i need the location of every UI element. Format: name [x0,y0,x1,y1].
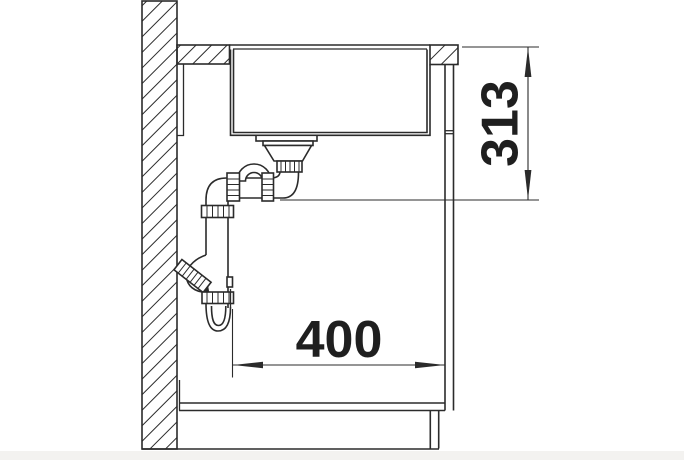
trap-vertical-pipe [206,218,228,256]
plinth-front [430,411,438,449]
dimension-400-label: 400 [296,311,383,369]
dimension-313: 313 [280,47,539,200]
union-nut-left [227,173,240,201]
footer-strip [0,451,684,460]
dimension-313-label: 313 [472,80,530,167]
dim-400-arrow-left [233,362,263,368]
dim-313-arrow-bottom [525,170,532,200]
sink-basin [231,49,431,135]
countertop-right-section [430,45,458,65]
cabinet-bottom-shelf [179,380,445,411]
union-nut-lower [202,292,234,304]
strainer-assembly [256,135,317,172]
wall-section [142,1,177,449]
union-nut-right [262,173,274,201]
dim-400-arrow-right [415,362,445,368]
sink-section-drawing: 400 313 [0,0,684,460]
wall-batten [177,65,184,136]
dim-313-arrow-top [525,48,532,78]
union-nut-upper [202,206,234,218]
countertop-left-section [177,45,230,64]
technical-drawing-canvas: 400 313 [0,0,684,460]
dimension-400: 400 [233,309,446,378]
cabinet-side-panel [445,65,454,411]
